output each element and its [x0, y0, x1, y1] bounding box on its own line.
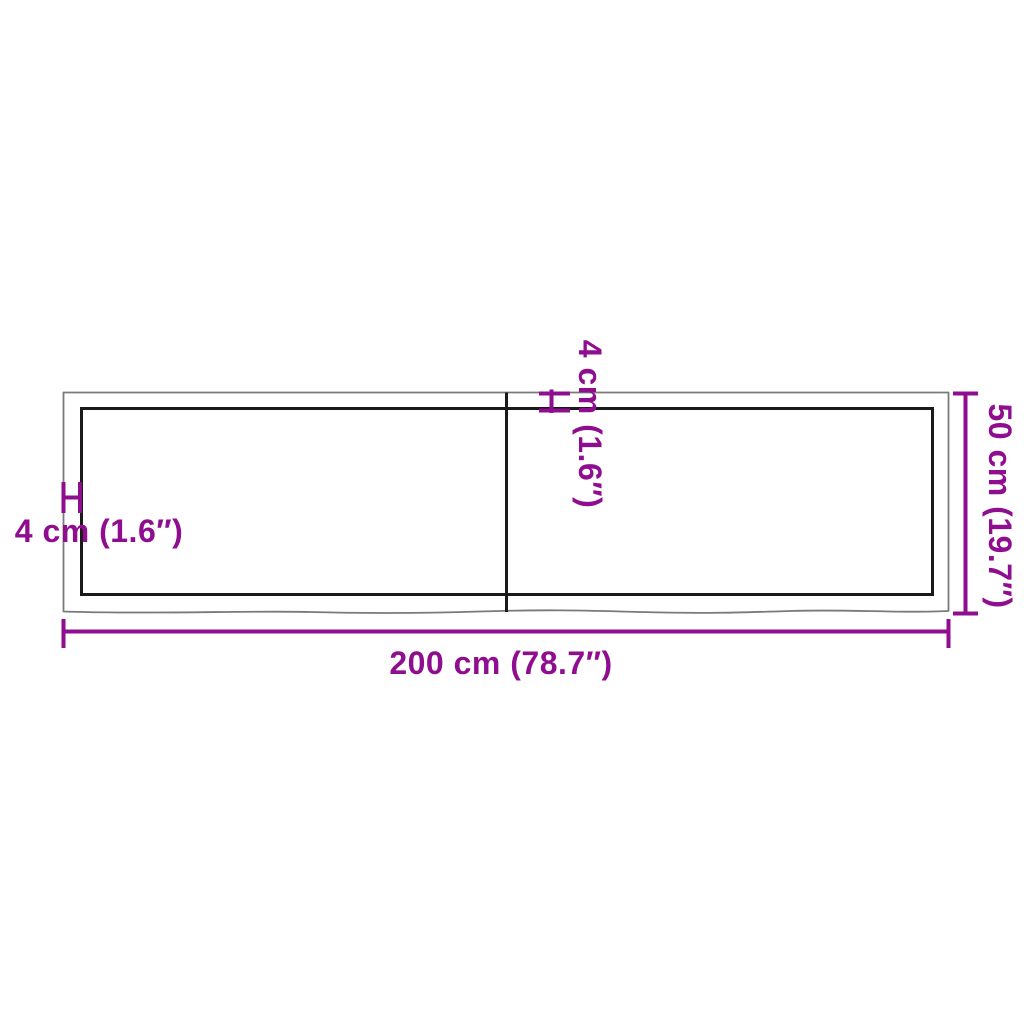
width-dimension-label: 200 cm (78.7″) — [389, 645, 612, 681]
thickness-left-label: 4 cm (1.6″) — [15, 513, 183, 549]
height-dimension-label: 50 cm (19.7″) — [982, 403, 1018, 608]
diagram-canvas: 200 cm (78.7″) 4 cm (1.6″) 4 cm (1.6″) 5… — [0, 0, 1024, 1024]
dimension-lines — [64, 390, 979, 649]
thickness-center-label: 4 cm (1.6″) — [572, 340, 608, 508]
panel-inner-outline-group — [82, 393, 933, 613]
dimension-diagram: 200 cm (78.7″) 4 cm (1.6″) 4 cm (1.6″) 5… — [0, 0, 1024, 1024]
